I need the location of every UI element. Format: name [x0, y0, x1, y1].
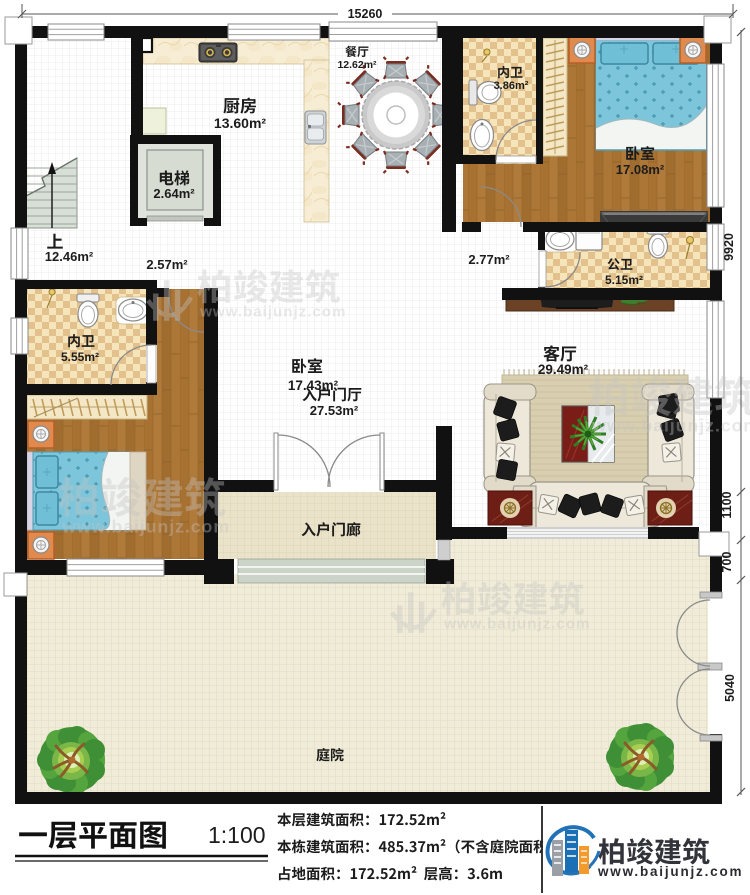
svg-text:2.64m²: 2.64m² — [153, 186, 195, 201]
svg-text:www.baijunjz.com: www.baijunjz.com — [591, 415, 750, 435]
svg-text:29.49m²: 29.49m² — [538, 362, 589, 377]
svg-text:www.baijunjz.com: www.baijunjz.com — [597, 864, 743, 879]
svg-text:5040: 5040 — [723, 674, 737, 702]
svg-text:www.baijunjz.com: www.baijunjz.com — [61, 516, 230, 536]
svg-text:3.86m²: 3.86m² — [494, 80, 529, 92]
svg-text:2.57m²: 2.57m² — [146, 257, 188, 272]
svg-text:12.46m²: 12.46m² — [45, 249, 94, 264]
svg-text:17.43m²: 17.43m² — [288, 378, 339, 393]
svg-text:1100: 1100 — [720, 491, 734, 518]
svg-text:www.baijunjz.com: www.baijunjz.com — [443, 616, 590, 633]
svg-text:12.62m²: 12.62m² — [337, 59, 377, 71]
svg-text:13.60m²: 13.60m² — [214, 115, 266, 131]
svg-text:5.15m²: 5.15m² — [605, 273, 643, 287]
svg-text:1:100: 1:100 — [208, 822, 266, 848]
svg-text:9920: 9920 — [722, 233, 736, 261]
svg-text:27.53m²: 27.53m² — [310, 403, 359, 418]
svg-text:www.baijunjz.com: www.baijunjz.com — [199, 304, 346, 321]
svg-text:700: 700 — [720, 552, 734, 573]
svg-text:2.77m²: 2.77m² — [468, 252, 510, 267]
svg-text:15260: 15260 — [348, 7, 383, 21]
svg-text:5.55m²: 5.55m² — [61, 350, 99, 364]
svg-text:17.08m²: 17.08m² — [616, 162, 665, 177]
